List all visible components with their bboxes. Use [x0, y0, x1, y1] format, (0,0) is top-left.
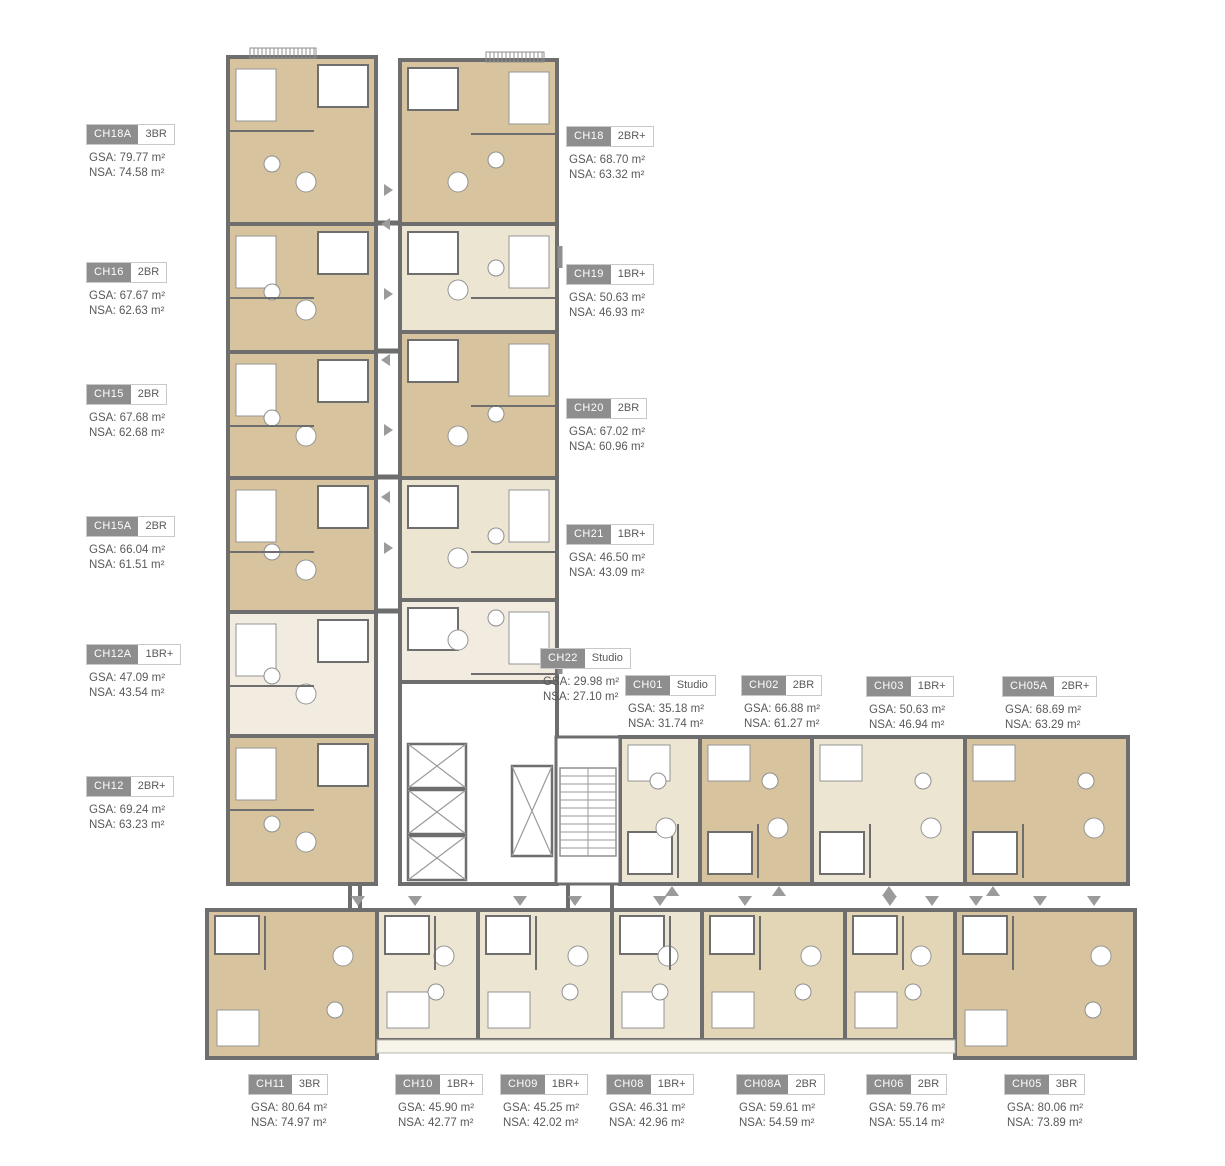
unit-type: 1BR+ [440, 1075, 482, 1094]
entrance-arrow-icon [969, 896, 983, 906]
unit-areas [207, 57, 1135, 1058]
unit-number-circle [264, 410, 280, 426]
bathroom-area [408, 486, 458, 528]
entrance-arrow-icon [408, 896, 422, 906]
unit-badge: CH062BR [866, 1074, 947, 1095]
bed-icon [488, 992, 530, 1028]
unit-code: CH12 [87, 777, 131, 796]
bed-icon [509, 490, 549, 542]
unit-gsa: GSA: 46.31 m² [606, 1102, 694, 1114]
entrance-arrow-icon [665, 886, 679, 896]
bathroom-area [318, 360, 368, 402]
unit-label-ch03: CH031BR+GSA: 50.63 m²NSA: 46.94 m² [866, 676, 954, 731]
table-icon [333, 946, 353, 966]
unit-gsa: GSA: 67.67 m² [86, 290, 167, 302]
unit-label-ch20: CH202BRGSA: 67.02 m²NSA: 60.96 m² [566, 398, 647, 453]
table-icon [911, 946, 931, 966]
unit-type: 1BR+ [611, 525, 653, 544]
unit-nsa: NSA: 55.14 m² [866, 1117, 947, 1129]
bathroom-area [820, 832, 864, 874]
unit-label-ch06: CH062BRGSA: 59.76 m²NSA: 55.14 m² [866, 1074, 947, 1129]
unit-label-ch02: CH022BRGSA: 66.88 m²NSA: 61.27 m² [741, 675, 822, 730]
unit-label-ch08a: CH08A2BRGSA: 59.61 m²NSA: 54.59 m² [736, 1074, 825, 1129]
entrance-arrow-icon [1033, 896, 1047, 906]
unit-code: CH02 [742, 676, 786, 695]
unit-type: 2BR [786, 676, 821, 695]
unit-gsa: GSA: 29.98 m² [540, 676, 631, 688]
unit-number-circle [1085, 1002, 1101, 1018]
unit-number-circle [1078, 773, 1094, 789]
unit-gsa: GSA: 50.63 m² [566, 292, 654, 304]
bed-icon [236, 748, 276, 800]
unit-badge: CH12A1BR+ [86, 644, 181, 665]
unit-label-ch21: CH211BR+GSA: 46.50 m²NSA: 43.09 m² [566, 524, 654, 579]
unit-label-ch12a: CH12A1BR+GSA: 47.09 m²NSA: 43.54 m² [86, 644, 181, 699]
unit-nsa: NSA: 42.96 m² [606, 1117, 694, 1129]
unit-nsa: NSA: 74.97 m² [248, 1117, 328, 1129]
unit-label-ch18a: CH18A3BRGSA: 79.77 m²NSA: 74.58 m² [86, 124, 175, 179]
unit-number-circle [264, 668, 280, 684]
unit-nsa: NSA: 46.93 m² [566, 307, 654, 319]
bathroom-area [620, 916, 664, 954]
unit-type: 1BR+ [138, 645, 180, 664]
bed-icon [509, 236, 549, 288]
entrance-arrow-icon [351, 896, 365, 906]
unit-nsa: NSA: 60.96 m² [566, 441, 647, 453]
unit-code: CH01 [626, 676, 670, 695]
unit-number-circle [905, 984, 921, 1000]
table-icon [568, 946, 588, 966]
unit-gsa: GSA: 80.06 m² [1004, 1102, 1085, 1114]
unit-label-ch11: CH113BRGSA: 80.64 m²NSA: 74.97 m² [248, 1074, 328, 1129]
unit-badge: CH113BR [248, 1074, 328, 1095]
unit-number-circle [915, 773, 931, 789]
bed-icon [509, 344, 549, 396]
unit-number-circle [428, 984, 444, 1000]
unit-label-ch01: CH01StudioGSA: 35.18 m²NSA: 31.74 m² [625, 675, 716, 730]
unit-badge: CH152BR [86, 384, 167, 405]
table-icon [658, 946, 678, 966]
unit-number-circle [795, 984, 811, 1000]
unit-gsa: GSA: 79.77 m² [86, 152, 175, 164]
unit-code: CH08 [607, 1075, 651, 1094]
bathroom-area [408, 340, 458, 382]
unit-type: 2BR [611, 399, 646, 418]
unit-badge: CH101BR+ [395, 1074, 483, 1095]
bathroom-area [408, 232, 458, 274]
table-icon [296, 426, 316, 446]
unit-type: 3BR [292, 1075, 327, 1094]
bed-icon [387, 992, 429, 1028]
unit-badge: CH081BR+ [606, 1074, 694, 1095]
unit-number-circle [488, 260, 504, 276]
entrance-arrow-icon [1087, 896, 1101, 906]
bed-icon [820, 745, 862, 781]
unit-type: Studio [670, 676, 715, 695]
unit-number-circle [650, 773, 666, 789]
unit-label-ch08: CH081BR+GSA: 46.31 m²NSA: 42.96 m² [606, 1074, 694, 1129]
bathroom-area [408, 68, 458, 110]
unit-number-circle [488, 528, 504, 544]
unit-nsa: NSA: 63.23 m² [86, 819, 174, 831]
unit-label-ch22: CH22StudioGSA: 29.98 m²NSA: 27.10 m² [540, 648, 631, 703]
unit-code: CH03 [867, 677, 911, 696]
unit-nsa: NSA: 31.74 m² [625, 718, 716, 730]
unit-gsa: GSA: 67.02 m² [566, 426, 647, 438]
unit-code: CH15 [87, 385, 131, 404]
entrance-arrow-icon [738, 896, 752, 906]
table-icon [448, 548, 468, 568]
unit-type: 2BR [788, 1075, 823, 1094]
unit-badge: CH202BR [566, 398, 647, 419]
unit-code: CH18A [87, 125, 138, 144]
bathroom-area [853, 916, 897, 954]
table-icon [921, 818, 941, 838]
bathroom-area [318, 620, 368, 662]
unit-badge: CH162BR [86, 262, 167, 283]
unit-gsa: GSA: 67.68 m² [86, 412, 167, 424]
table-icon [1084, 818, 1104, 838]
bed-icon [965, 1010, 1007, 1046]
unit-gsa: GSA: 46.50 m² [566, 552, 654, 564]
unit-number-circle [264, 816, 280, 832]
floor-plan-page: CH18A3BRGSA: 79.77 m²NSA: 74.58 m² CH162… [0, 0, 1225, 1166]
bathroom-area [318, 744, 368, 786]
unit-type: Studio [585, 649, 630, 668]
unit-badge: CH18A3BR [86, 124, 175, 145]
bed-icon [217, 1010, 259, 1046]
unit-number-circle [652, 984, 668, 1000]
bathroom-area [973, 832, 1017, 874]
bed-icon [236, 364, 276, 416]
unit-label-ch15a: CH15A2BRGSA: 66.04 m²NSA: 61.51 m² [86, 516, 175, 571]
unit-number-circle [488, 610, 504, 626]
unit-badge: CH22Studio [540, 648, 631, 669]
unit-badge: CH053BR [1004, 1074, 1085, 1095]
bathroom-area [708, 832, 752, 874]
unit-type: 3BR [138, 125, 173, 144]
table-icon [448, 172, 468, 192]
unit-badge: CH05A2BR+ [1002, 676, 1097, 697]
bed-icon [855, 992, 897, 1028]
unit-type: 2BR+ [611, 127, 653, 146]
unit-label-ch18: CH182BR+GSA: 68.70 m²NSA: 63.32 m² [566, 126, 654, 181]
unit-nsa: NSA: 27.10 m² [540, 691, 631, 703]
bathroom-area [318, 232, 368, 274]
unit-badge: CH15A2BR [86, 516, 175, 537]
unit-label-ch19: CH191BR+GSA: 50.63 m²NSA: 46.93 m² [566, 264, 654, 319]
unit-badge: CH091BR+ [500, 1074, 588, 1095]
unit-nsa: NSA: 62.63 m² [86, 305, 167, 317]
bathroom-area [215, 916, 259, 954]
unit-badge: CH08A2BR [736, 1074, 825, 1095]
entrance-arrow-icon [513, 896, 527, 906]
bed-icon [973, 745, 1015, 781]
unit-nsa: NSA: 46.94 m² [866, 719, 954, 731]
unit-badge: CH182BR+ [566, 126, 654, 147]
unit-nsa: NSA: 61.51 m² [86, 559, 175, 571]
unit-badge: CH031BR+ [866, 676, 954, 697]
table-icon [296, 172, 316, 192]
unit-gsa: GSA: 68.70 m² [566, 154, 654, 166]
unit-nsa: NSA: 63.32 m² [566, 169, 654, 181]
unit-code: CH12A [87, 645, 138, 664]
entrance-arrow-icon [986, 886, 1000, 896]
unit-gsa: GSA: 66.88 m² [741, 703, 822, 715]
bathroom-area [318, 486, 368, 528]
unit-type: 1BR+ [911, 677, 953, 696]
unit-nsa: NSA: 54.59 m² [736, 1117, 825, 1129]
entrance-arrow-icon [772, 886, 786, 896]
unit-label-ch10: CH101BR+GSA: 45.90 m²NSA: 42.77 m² [395, 1074, 483, 1129]
unit-gsa: GSA: 45.25 m² [500, 1102, 588, 1114]
unit-code: CH20 [567, 399, 611, 418]
unit-nsa: NSA: 62.68 m² [86, 427, 167, 439]
unit-type: 1BR+ [545, 1075, 587, 1094]
unit-code: CH18 [567, 127, 611, 146]
bed-icon [708, 745, 750, 781]
tower-corridor [376, 57, 400, 884]
unit-code: CH19 [567, 265, 611, 284]
unit-number-circle [488, 152, 504, 168]
table-icon [434, 946, 454, 966]
unit-type: 1BR+ [651, 1075, 693, 1094]
unit-gsa: GSA: 35.18 m² [625, 703, 716, 715]
table-icon [296, 300, 316, 320]
entrance-arrow-icon [925, 896, 939, 906]
balcony-hatch-left [250, 48, 316, 58]
unit-gsa: GSA: 69.24 m² [86, 804, 174, 816]
unit-type: 2BR [131, 385, 166, 404]
unit-type: 2BR+ [1054, 677, 1096, 696]
unit-code: CH08A [737, 1075, 788, 1094]
unit-gsa: GSA: 68.69 m² [1002, 704, 1097, 716]
unit-label-ch16: CH162BRGSA: 67.67 m²NSA: 62.63 m² [86, 262, 167, 317]
table-icon [768, 818, 788, 838]
unit-gsa: GSA: 59.76 m² [866, 1102, 947, 1114]
bathroom-area [318, 65, 368, 107]
unit-gsa: GSA: 80.64 m² [248, 1102, 328, 1114]
unit-badge: CH122BR+ [86, 776, 174, 797]
table-icon [448, 630, 468, 650]
unit-label-ch12: CH122BR+GSA: 69.24 m²NSA: 63.23 m² [86, 776, 174, 831]
bed-icon [236, 236, 276, 288]
table-icon [296, 560, 316, 580]
unit-label-ch05a: CH05A2BR+GSA: 68.69 m²NSA: 63.29 m² [1002, 676, 1097, 731]
unit-nsa: NSA: 42.02 m² [500, 1117, 588, 1129]
unit-badge: CH01Studio [625, 675, 716, 696]
unit-code: CH21 [567, 525, 611, 544]
unit-code: CH06 [867, 1075, 911, 1094]
unit-number-circle [488, 406, 504, 422]
unit-label-ch09: CH091BR+GSA: 45.25 m²NSA: 42.02 m² [500, 1074, 588, 1129]
entrance-arrow-icon [653, 896, 667, 906]
unit-number-circle [264, 156, 280, 172]
unit-gsa: GSA: 66.04 m² [86, 544, 175, 556]
unit-type: 2BR [138, 517, 173, 536]
unit-code: CH10 [396, 1075, 440, 1094]
unit-type: 2BR [131, 263, 166, 282]
unit-number-circle [562, 984, 578, 1000]
bathroom-area [486, 916, 530, 954]
bed-icon [712, 992, 754, 1028]
unit-nsa: NSA: 61.27 m² [741, 718, 822, 730]
unit-badge: CH022BR [741, 675, 822, 696]
unit-type: 1BR+ [611, 265, 653, 284]
entrance-arrow-icon [882, 886, 896, 896]
unit-code: CH15A [87, 517, 138, 536]
unit-nsa: NSA: 74.58 m² [86, 167, 175, 179]
unit-label-ch05: CH053BRGSA: 80.06 m²NSA: 73.89 m² [1004, 1074, 1085, 1129]
bed-icon [509, 72, 549, 124]
unit-type: 2BR [911, 1075, 946, 1094]
unit-nsa: NSA: 43.54 m² [86, 687, 181, 699]
unit-code: CH22 [541, 649, 585, 668]
table-icon [296, 832, 316, 852]
unit-gsa: GSA: 50.63 m² [866, 704, 954, 716]
table-icon [448, 426, 468, 446]
unit-type: 2BR+ [131, 777, 173, 796]
balcony-hatch-right [486, 52, 544, 62]
unit-type: 3BR [1049, 1075, 1084, 1094]
unit-badge: CH211BR+ [566, 524, 654, 545]
unit-number-circle [327, 1002, 343, 1018]
table-icon [448, 280, 468, 300]
bottom-balcony-strip [377, 1040, 955, 1053]
unit-gsa: GSA: 45.90 m² [395, 1102, 483, 1114]
table-icon [1091, 946, 1111, 966]
unit-code: CH05 [1005, 1075, 1049, 1094]
table-icon [656, 818, 676, 838]
unit-nsa: NSA: 73.89 m² [1004, 1117, 1085, 1129]
unit-label-ch15: CH152BRGSA: 67.68 m²NSA: 62.68 m² [86, 384, 167, 439]
unit-nsa: NSA: 43.09 m² [566, 567, 654, 579]
unit-code: CH09 [501, 1075, 545, 1094]
bed-icon [236, 490, 276, 542]
entrance-arrow-icon [883, 896, 897, 906]
table-icon [801, 946, 821, 966]
unit-code: CH05A [1003, 677, 1054, 696]
unit-code: CH16 [87, 263, 131, 282]
unit-nsa: NSA: 63.29 m² [1002, 719, 1097, 731]
bathroom-area [385, 916, 429, 954]
unit-code: CH11 [249, 1075, 292, 1094]
bed-icon [236, 69, 276, 121]
unit-number-circle [762, 773, 778, 789]
unit-nsa: NSA: 42.77 m² [395, 1117, 483, 1129]
unit-gsa: GSA: 59.61 m² [736, 1102, 825, 1114]
bathroom-area [963, 916, 1007, 954]
bathroom-area [710, 916, 754, 954]
unit-badge: CH191BR+ [566, 264, 654, 285]
entrance-arrow-icon [568, 896, 582, 906]
unit-gsa: GSA: 47.09 m² [86, 672, 181, 684]
